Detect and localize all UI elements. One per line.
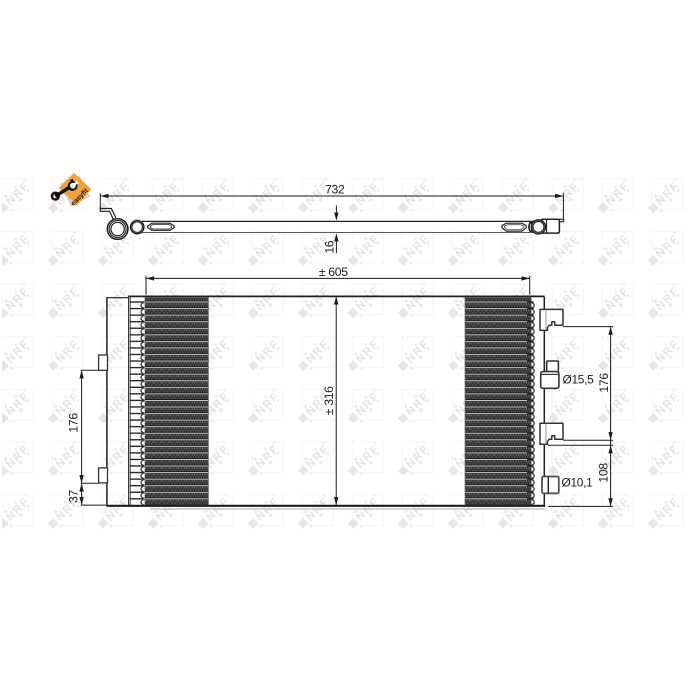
svg-text:Ø15,5: Ø15,5 — [563, 372, 595, 386]
svg-text:± 605: ± 605 — [319, 265, 348, 279]
svg-text:Ø10,1: Ø10,1 — [562, 475, 594, 489]
svg-text:732: 732 — [325, 183, 345, 197]
svg-text:± 316: ± 316 — [322, 386, 336, 415]
svg-text:108: 108 — [597, 463, 611, 483]
svg-text:16: 16 — [323, 240, 337, 253]
svg-text:37: 37 — [67, 490, 81, 503]
svg-text:176: 176 — [597, 373, 611, 393]
svg-text:176: 176 — [67, 413, 81, 433]
